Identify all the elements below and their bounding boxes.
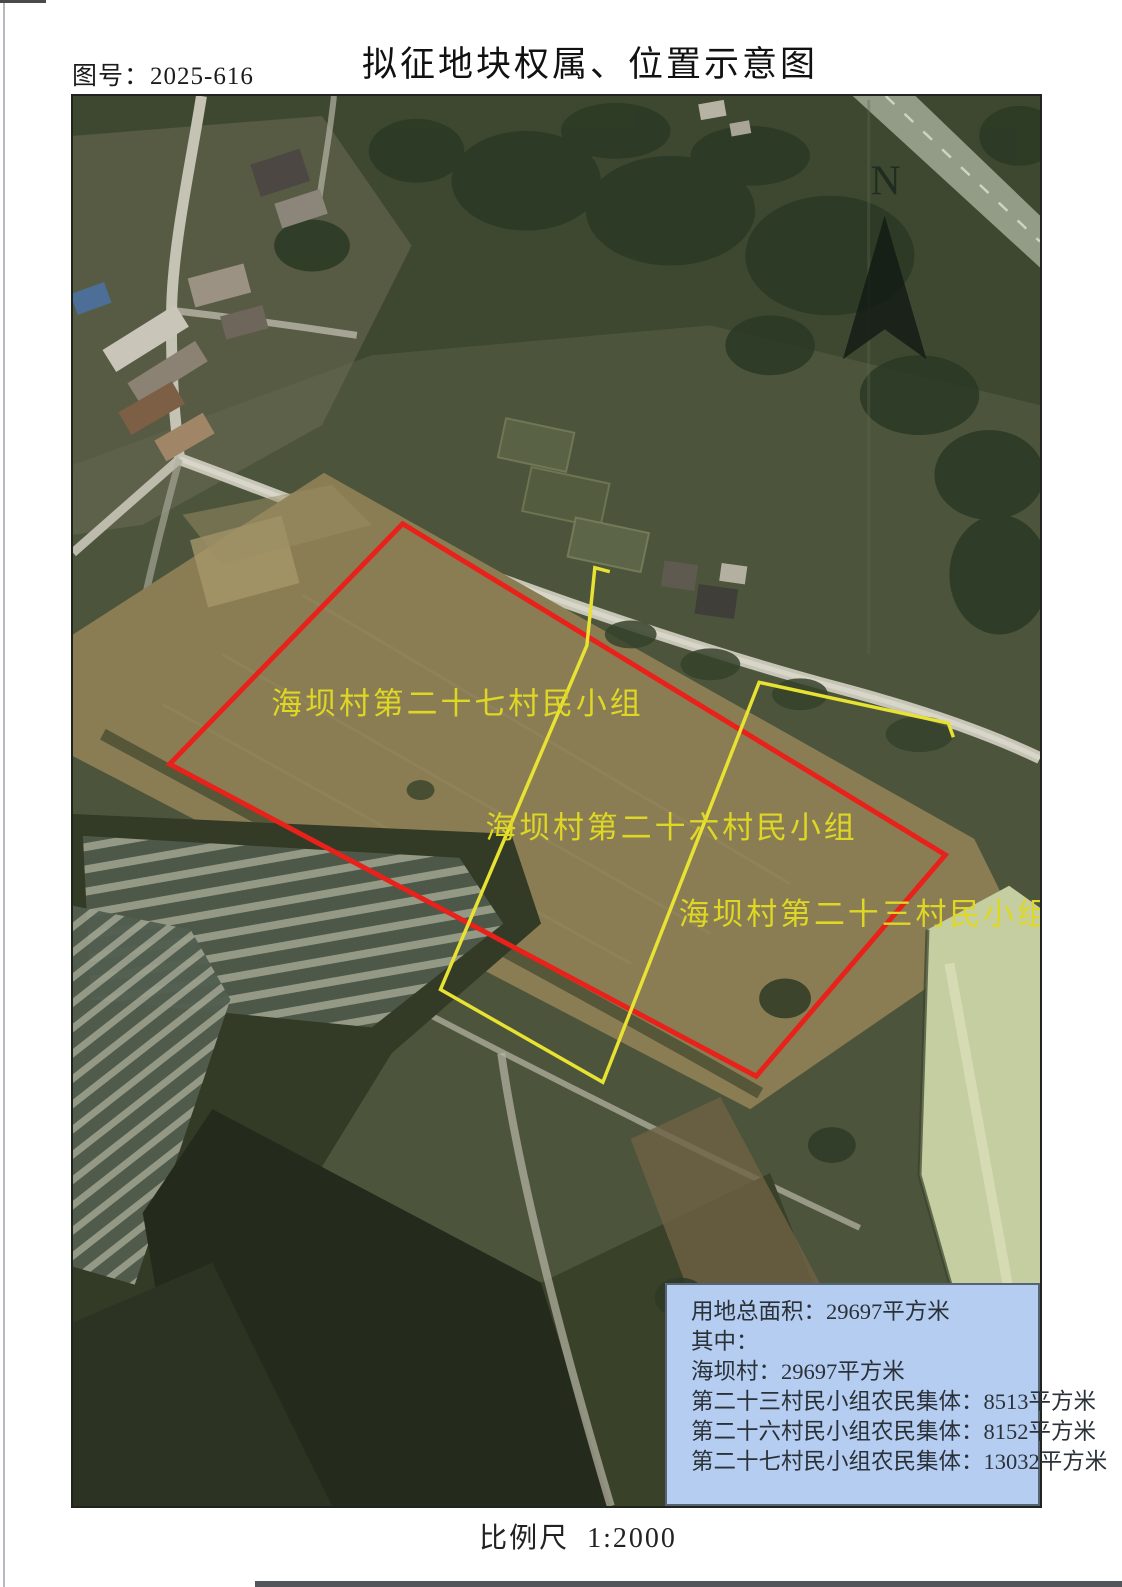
parcel-label-group-26: 海坝村第二十六村民小组	[485, 810, 857, 845]
scale-label: 比例尺 1:2000	[268, 1516, 888, 1556]
info-line-village: 海坝村：29697平方米	[691, 1357, 1032, 1387]
parcel-label-group-27: 海坝村第二十七村民小组	[271, 686, 643, 721]
info-line-group-27: 第二十七村民小组农民集体：13032平方米	[691, 1447, 1032, 1477]
scan-corner-mark	[0, 0, 46, 3]
document-page: 图号：2025-616 拟征地块权属、位置示意图	[0, 0, 1122, 1587]
figure-number: 图号：2025-616	[72, 56, 254, 92]
map-frame: 海坝村第二十七村民小组 海坝村第二十六村民小组 海坝村第二十三村民小组 N 用地…	[71, 94, 1042, 1508]
info-line-including: 其中：	[691, 1327, 1032, 1357]
scan-edge-line	[3, 0, 5, 1587]
land-area-info-box: 用地总面积：29697平方米 其中： 海坝村：29697平方米 第二十三村民小组…	[665, 1283, 1040, 1506]
info-line-total-area: 用地总面积：29697平方米	[691, 1297, 1032, 1327]
scan-artifact-bar	[255, 1581, 1122, 1587]
parcel-label-group-23: 海坝村第二十三村民小组	[679, 897, 1040, 932]
info-line-group-26: 第二十六村民小组农民集体：8152平方米	[691, 1417, 1032, 1447]
north-arrow-label: N	[871, 159, 901, 205]
info-line-group-23: 第二十三村民小组农民集体：8513平方米	[691, 1387, 1032, 1417]
page-title: 拟征地块权属、位置示意图	[280, 36, 900, 87]
